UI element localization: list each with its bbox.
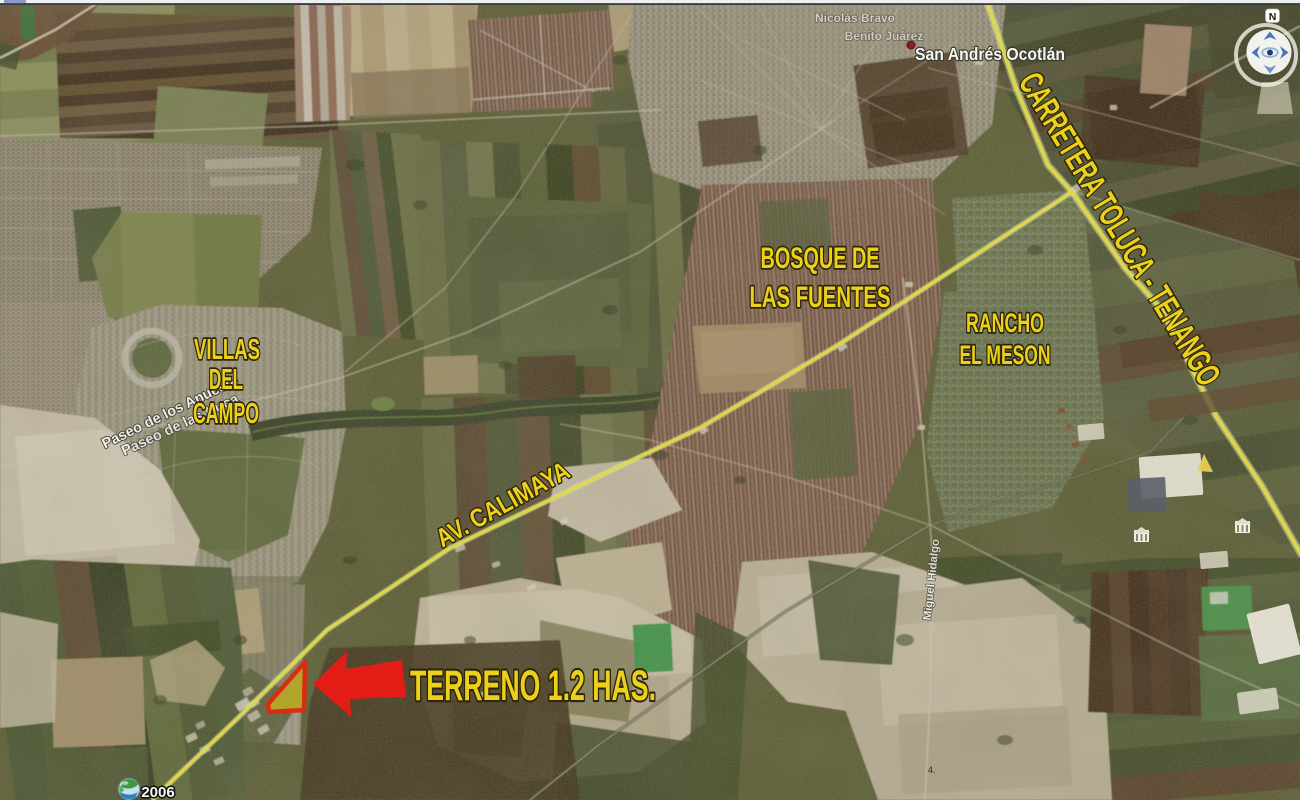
svg-text:RANCHO: RANCHO xyxy=(966,308,1044,338)
svg-text:CAMPO: CAMPO xyxy=(193,398,259,430)
svg-text:VILLAS: VILLAS xyxy=(194,334,260,366)
svg-text:4.: 4. xyxy=(928,765,936,775)
svg-text:EL MESON: EL MESON xyxy=(960,340,1051,370)
svg-text:San Andrés Ocotlán: San Andrés Ocotlán xyxy=(915,44,1065,64)
svg-text:2006: 2006 xyxy=(141,784,174,800)
svg-text:TERRENO 1.2 HAS.: TERRENO 1.2 HAS. xyxy=(410,662,656,710)
svg-text:N: N xyxy=(1269,11,1277,23)
svg-text:DEL: DEL xyxy=(209,364,243,396)
svg-text:Nicolás Bravo: Nicolás Bravo xyxy=(815,11,895,25)
svg-text:LAS FUENTES: LAS FUENTES xyxy=(750,281,891,314)
svg-text:BOSQUE DE: BOSQUE DE xyxy=(761,242,880,275)
